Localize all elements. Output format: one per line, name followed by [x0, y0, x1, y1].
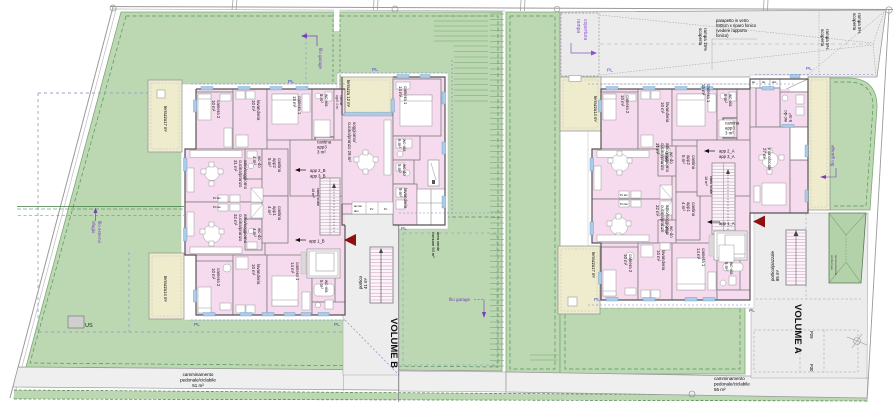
svg-text:4 m²: 4 m²: [252, 156, 257, 165]
svg-text:filo garage: filo garage: [830, 144, 835, 166]
svg-text:PL: PL: [607, 68, 613, 74]
svg-text:app 1_B: app 1_B: [309, 239, 325, 244]
svg-text:14 m²: 14 m²: [290, 262, 295, 274]
svg-text:cucina/pranzo 28 m²: cucina/pranzo 28 m²: [347, 122, 352, 162]
svg-text:P30: P30: [809, 364, 814, 372]
svg-text:Po lav: Po lav: [620, 202, 628, 206]
svg-text:vano scale: vano scale: [316, 188, 320, 206]
svg-text:5 m²: 5 m²: [788, 113, 793, 122]
svg-text:16 m²: 16 m²: [311, 188, 315, 198]
svg-text:pedonale/ciclabile: pedonale/ciclabile: [180, 378, 216, 383]
svg-text:abo: abo: [354, 209, 359, 213]
svg-text:10 m²: 10 m²: [620, 95, 625, 107]
svg-text:3 m²: 3 m²: [317, 150, 326, 155]
svg-text:VOLUME B: VOLUME B: [388, 318, 399, 368]
svg-text:US: US: [85, 323, 93, 329]
svg-text:15 m²: 15 m²: [292, 96, 297, 108]
svg-text:terrazza14 m²: terrazza14 m²: [163, 276, 168, 302]
svg-text:16 m²: 16 m²: [704, 176, 708, 186]
svg-text:terrazza17 m²: terrazza17 m²: [591, 252, 596, 278]
svg-text:lav lav: lav lav: [354, 204, 363, 208]
svg-text:rifugio: rifugio: [91, 221, 96, 234]
svg-text:PL: PL: [749, 308, 755, 314]
svg-text:31 m²: 31 m²: [655, 143, 660, 155]
svg-text:10 m²: 10 m²: [211, 100, 216, 112]
svg-text:VOLUME A: VOLUME A: [792, 304, 803, 354]
svg-text:10 m²: 10 m²: [656, 250, 661, 262]
svg-text:10 m²: 10 m²: [623, 254, 628, 266]
svg-text:scoperta: scoperta: [820, 29, 825, 47]
svg-text:app 2_B: app 2_B: [310, 168, 326, 173]
svg-text:51 m²: 51 m²: [192, 383, 204, 388]
svg-text:filo esterno: filo esterno: [97, 221, 102, 244]
svg-text:4 m²: 4 m²: [252, 228, 257, 237]
svg-text:4 m²: 4 m²: [664, 152, 669, 161]
svg-text:5 m²: 5 m²: [724, 262, 729, 271]
svg-text:3 m²: 3 m²: [725, 131, 734, 136]
svg-text:app 1_A: app 1_A: [719, 221, 735, 226]
svg-text:confermare: confermare: [830, 255, 834, 271]
svg-text:PL: PL: [401, 226, 407, 232]
svg-text:Pν lav: Pν lav: [213, 196, 221, 200]
svg-text:5 m²: 5 m²: [723, 94, 728, 103]
svg-text:PL: PL: [372, 67, 378, 73]
svg-text:32 m²: 32 m²: [655, 205, 660, 217]
svg-text:10 m²: 10 m²: [251, 100, 256, 112]
svg-text:4 m²: 4 m²: [681, 202, 686, 211]
svg-text:10 m²: 10 m²: [660, 102, 665, 114]
svg-text:32 m²: 32 m²: [233, 214, 238, 226]
svg-text:Pν lav: Pν lav: [620, 193, 628, 197]
svg-text:5 m²: 5 m²: [319, 94, 324, 103]
svg-text:app0 4 m²: app0 4 m²: [335, 95, 339, 109]
svg-text:5 m²: 5 m²: [267, 158, 272, 167]
svg-text:PL: PL: [594, 297, 600, 303]
svg-text:56 m²: 56 m²: [714, 387, 726, 392]
svg-text:terrazza17 m²: terrazza17 m²: [163, 106, 168, 132]
svg-text:abo: abo: [772, 80, 777, 84]
svg-text:PL: PL: [806, 66, 812, 72]
svg-text:PL: PL: [288, 79, 294, 85]
svg-text:85 m²: 85 m²: [775, 269, 780, 281]
svg-text:5 m²: 5 m²: [397, 164, 402, 173]
svg-text:pedonale/ciclabile: pedonale/ciclabile: [714, 382, 750, 387]
svg-text:5 m²: 5 m²: [681, 155, 686, 164]
svg-text:15 m²: 15 m²: [701, 84, 706, 96]
svg-text:app 2_A: app 2_A: [719, 149, 735, 154]
svg-text:PL: PL: [334, 322, 340, 328]
svg-text:fonico): fonico): [716, 33, 729, 38]
svg-text:Po lav: Po lav: [213, 205, 221, 209]
svg-text:app 3_A: app 3_A: [719, 154, 735, 159]
svg-text:14 m²: 14 m²: [696, 248, 701, 260]
svg-text:9 m²: 9 m²: [398, 188, 403, 197]
svg-text:rampa: rampa: [575, 19, 581, 33]
svg-text:27 m²: 27 m²: [762, 148, 767, 160]
svg-text:10 m²: 10 m²: [211, 268, 216, 280]
svg-text:P29: P29: [809, 331, 814, 339]
svg-text:filo garage: filo garage: [449, 297, 471, 302]
svg-text:app 3_B: app 3_B: [310, 174, 326, 179]
svg-text:scoperta: scoperta: [852, 13, 857, 31]
svg-text:4 m²: 4 m²: [664, 226, 669, 235]
svg-text:31 m²: 31 m²: [233, 160, 238, 172]
svg-text:filo garage: filo garage: [318, 48, 323, 70]
svg-text:comune 93 m²: comune 93 m²: [431, 232, 436, 258]
svg-text:copertura: copertura: [582, 19, 588, 40]
svg-text:camminamento: camminamento: [183, 372, 214, 377]
svg-text:5 m²: 5 m²: [319, 280, 324, 289]
svg-text:41 m²: 41 m²: [363, 277, 368, 289]
svg-text:vano scale: vano scale: [709, 176, 713, 194]
svg-text:terrazza14 m²: terrazza14 m²: [593, 96, 598, 122]
svg-text:10 m²: 10 m²: [251, 264, 256, 276]
svg-text:4 m²: 4 m²: [267, 206, 272, 215]
svg-text:14 m²: 14 m²: [398, 86, 403, 98]
svg-text:6 m²: 6 m²: [397, 139, 402, 148]
svg-text:PL: PL: [194, 322, 200, 328]
svg-text:camminamento: camminamento: [714, 376, 745, 381]
svg-text:scoperta: scoperta: [698, 28, 703, 46]
